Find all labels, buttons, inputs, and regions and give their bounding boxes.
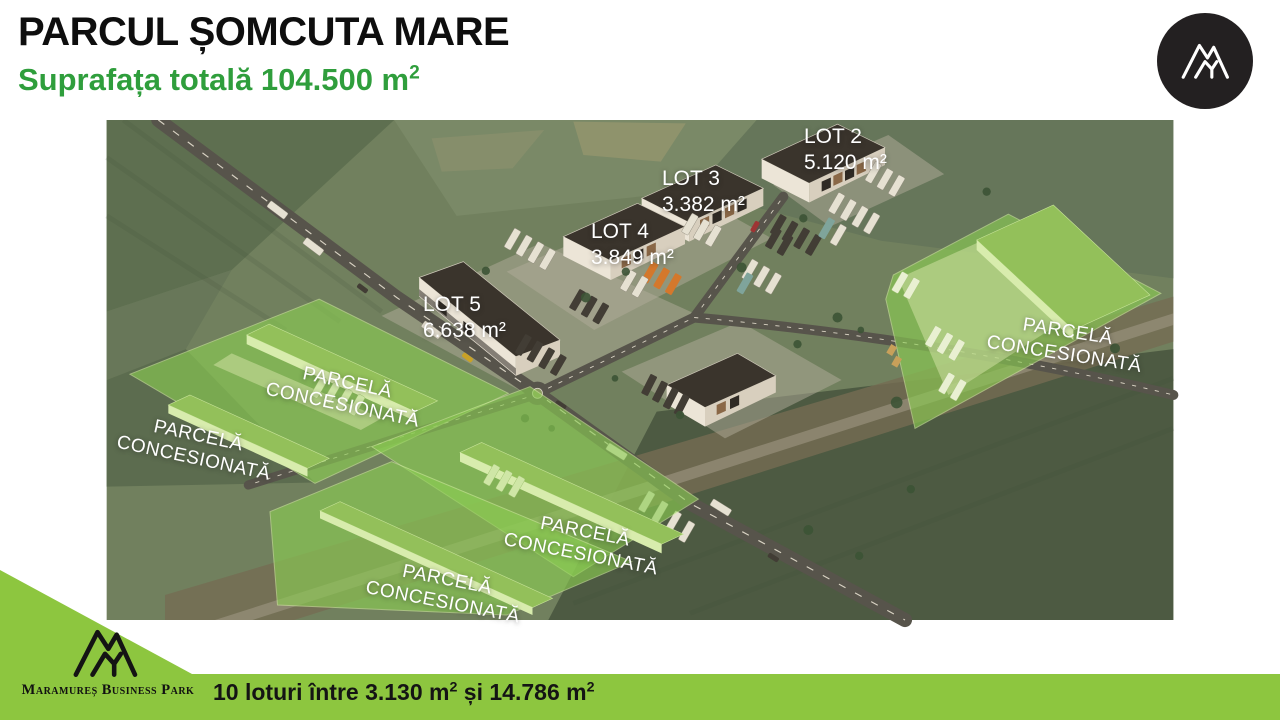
footer-brand-name: Maramureș Business Park bbox=[8, 682, 208, 699]
lot4-name: LOT 4 bbox=[591, 219, 674, 245]
subtitle-sup: 2 bbox=[409, 63, 420, 84]
subtitle-text: Suprafața totală 104.500 m bbox=[18, 62, 409, 97]
company-logo-badge bbox=[1157, 13, 1253, 109]
lot3-label: LOT 3 3.382 m² bbox=[662, 166, 745, 218]
slide: PARCUL ȘOMCUTA MARE Suprafața totală 104… bbox=[0, 0, 1280, 720]
footer-lots-summary: 10 loturi între 3.130 m2 și 14.786 m2 bbox=[213, 679, 595, 706]
footer-sup2: 2 bbox=[587, 679, 595, 695]
mountain-logo-icon bbox=[1177, 38, 1233, 84]
page-title: PARCUL ȘOMCUTA MARE bbox=[18, 10, 509, 55]
footer-mountain-logo-icon bbox=[58, 623, 152, 688]
page-subtitle: Suprafața totală 104.500 m2 bbox=[18, 62, 420, 98]
site-map bbox=[0, 120, 1280, 720]
lot5-name: LOT 5 bbox=[423, 292, 506, 318]
lot4-area: 3.849 m² bbox=[591, 245, 674, 271]
lot2-name: LOT 2 bbox=[804, 124, 887, 150]
footer-text-part1: 10 loturi între 3.130 m bbox=[213, 679, 449, 705]
lot5-label: LOT 5 6.638 m² bbox=[423, 292, 506, 344]
lot5-area: 6.638 m² bbox=[423, 318, 506, 344]
footer-text-part2: și 14.786 m bbox=[457, 679, 586, 705]
lot2-label: LOT 2 5.120 m² bbox=[804, 124, 887, 176]
lot4-label: LOT 4 3.849 m² bbox=[591, 219, 674, 271]
lot2-area: 5.120 m² bbox=[804, 150, 887, 176]
lot3-area: 3.382 m² bbox=[662, 192, 745, 218]
lot3-name: LOT 3 bbox=[662, 166, 745, 192]
site-aerial-render: LOT 2 5.120 m² LOT 3 3.382 m² LOT 4 3.84… bbox=[0, 120, 1280, 720]
